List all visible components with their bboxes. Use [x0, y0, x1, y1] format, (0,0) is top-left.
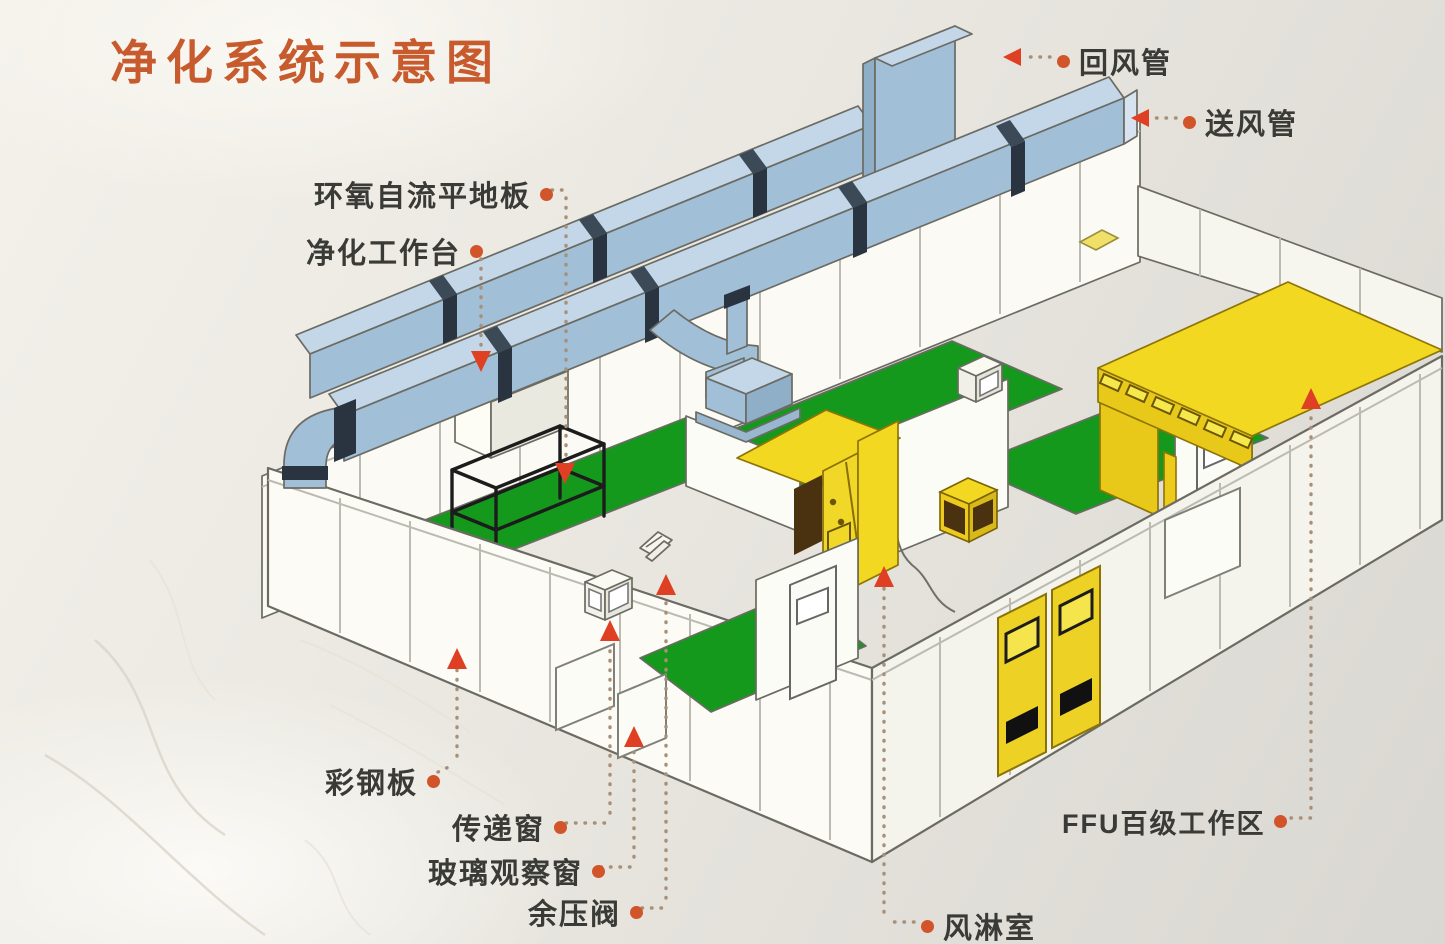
label-air-shower-room: 风淋室: [921, 905, 1036, 944]
label-text: 回风管: [1079, 40, 1172, 82]
label-text: 玻璃观察窗: [428, 850, 583, 892]
label-color-steel-panel: 彩钢板: [325, 760, 440, 802]
label-transfer-window: 传递窗: [452, 806, 567, 848]
label-text: 送风管: [1205, 101, 1298, 143]
leader-dot: [470, 245, 483, 258]
leader-dot: [1057, 55, 1070, 68]
leader-dot: [427, 775, 440, 788]
label-return-air-duct: 回风管: [1057, 40, 1172, 82]
label-text: 传递窗: [452, 806, 545, 848]
label-residual-pressure-valve: 余压阀: [528, 891, 643, 933]
label-supply-air-duct: 送风管: [1183, 101, 1298, 143]
vestibule-door: [790, 566, 836, 699]
equipment-cabinet: [940, 478, 997, 542]
label-text: 余压阀: [528, 891, 621, 933]
leader-dot: [540, 188, 553, 201]
residual-pressure-valve-object: [640, 532, 672, 561]
label-text: 彩钢板: [325, 760, 418, 802]
leader-dot: [1183, 116, 1196, 129]
leader-dot: [554, 821, 567, 834]
label-ffu-work-area: FFU百级工作区: [1062, 802, 1287, 841]
diagram-title: 净化系统示意图: [110, 24, 502, 93]
label-text: 风淋室: [943, 905, 1036, 944]
arrow-pressure-valve: [656, 574, 676, 595]
leader-dot: [921, 920, 934, 933]
arrow-return-duct: [1003, 48, 1021, 66]
label-glass-observation-window: 玻璃观察窗: [428, 850, 605, 892]
label-text: FFU百级工作区: [1062, 802, 1265, 841]
leader-dot: [592, 865, 605, 878]
leader-dot: [630, 906, 643, 919]
label-epoxy-floor: 环氧自流平地板: [314, 173, 553, 215]
label-text: 净化工作台: [306, 230, 461, 272]
leader-dot: [1274, 815, 1287, 828]
cleanroom-system-diagram: 净化系统示意图 回风管 送风管 环氧自流平地板 净化工作台 彩钢板 传递窗 玻璃…: [0, 0, 1445, 944]
label-clean-workbench: 净化工作台: [306, 230, 483, 272]
label-text: 环氧自流平地板: [314, 173, 531, 215]
